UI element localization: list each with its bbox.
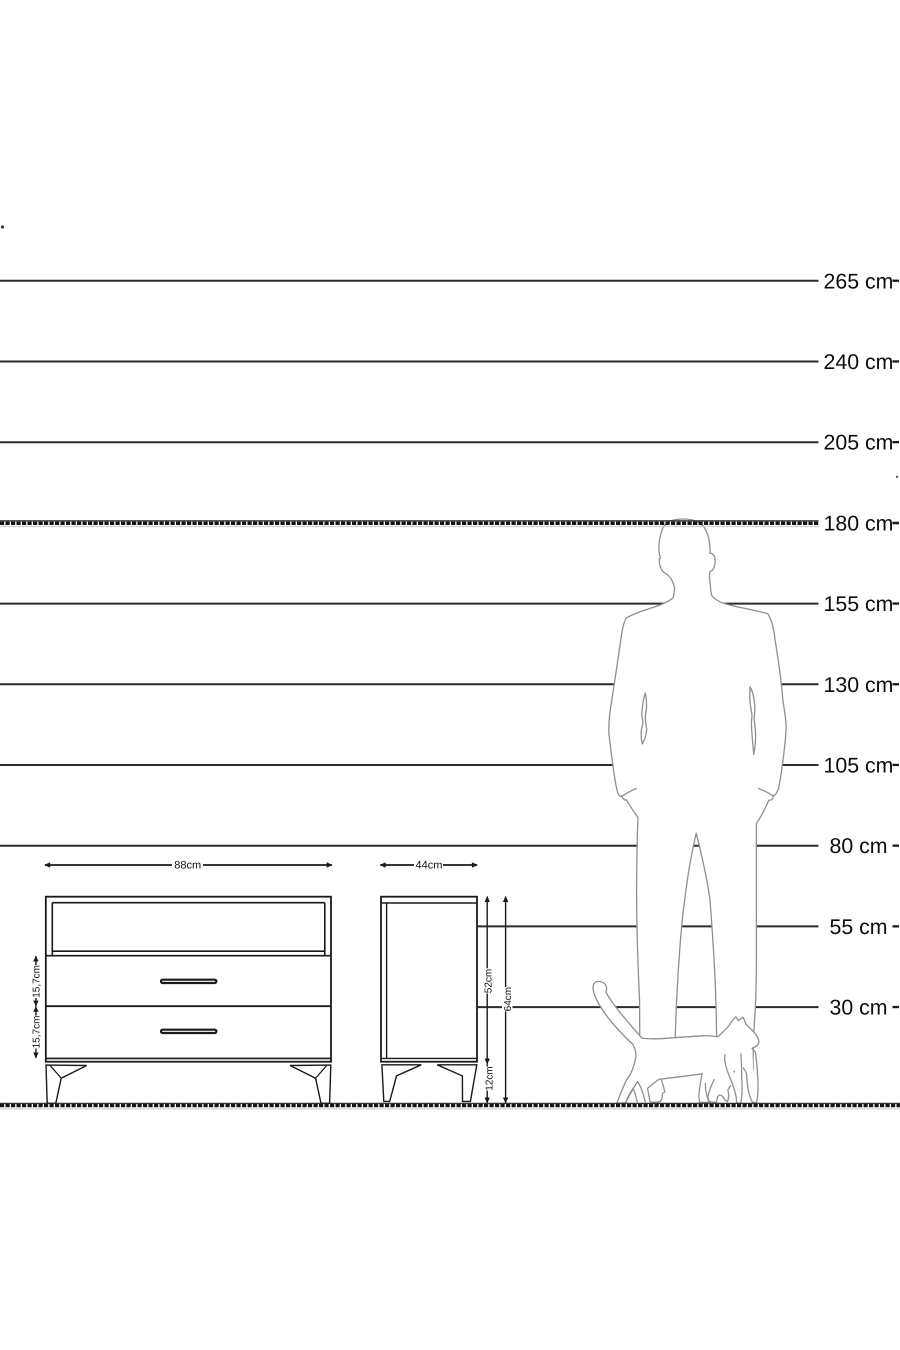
svg-text:180 cm: 180 cm [824, 511, 894, 535]
svg-text:55 cm: 55 cm [830, 915, 888, 939]
svg-text:240 cm: 240 cm [824, 350, 894, 374]
svg-text:52cm: 52cm [484, 969, 495, 993]
svg-text:130 cm: 130 cm [824, 673, 894, 697]
svg-text:44cm: 44cm [416, 860, 443, 872]
svg-text:205 cm: 205 cm [824, 431, 894, 455]
svg-text:265 cm: 265 cm [824, 269, 894, 293]
svg-text:80 cm: 80 cm [830, 834, 888, 858]
svg-text:105 cm: 105 cm [824, 754, 894, 778]
svg-text:88cm: 88cm [174, 860, 201, 872]
svg-text:30 cm: 30 cm [830, 996, 888, 1020]
svg-text:15,7cm: 15,7cm [31, 1016, 42, 1049]
svg-text:155 cm: 155 cm [824, 592, 894, 616]
svg-text:15,7cm: 15,7cm [31, 965, 42, 998]
svg-text:64cm: 64cm [503, 987, 514, 1011]
svg-text:12cm: 12cm [485, 1066, 496, 1090]
